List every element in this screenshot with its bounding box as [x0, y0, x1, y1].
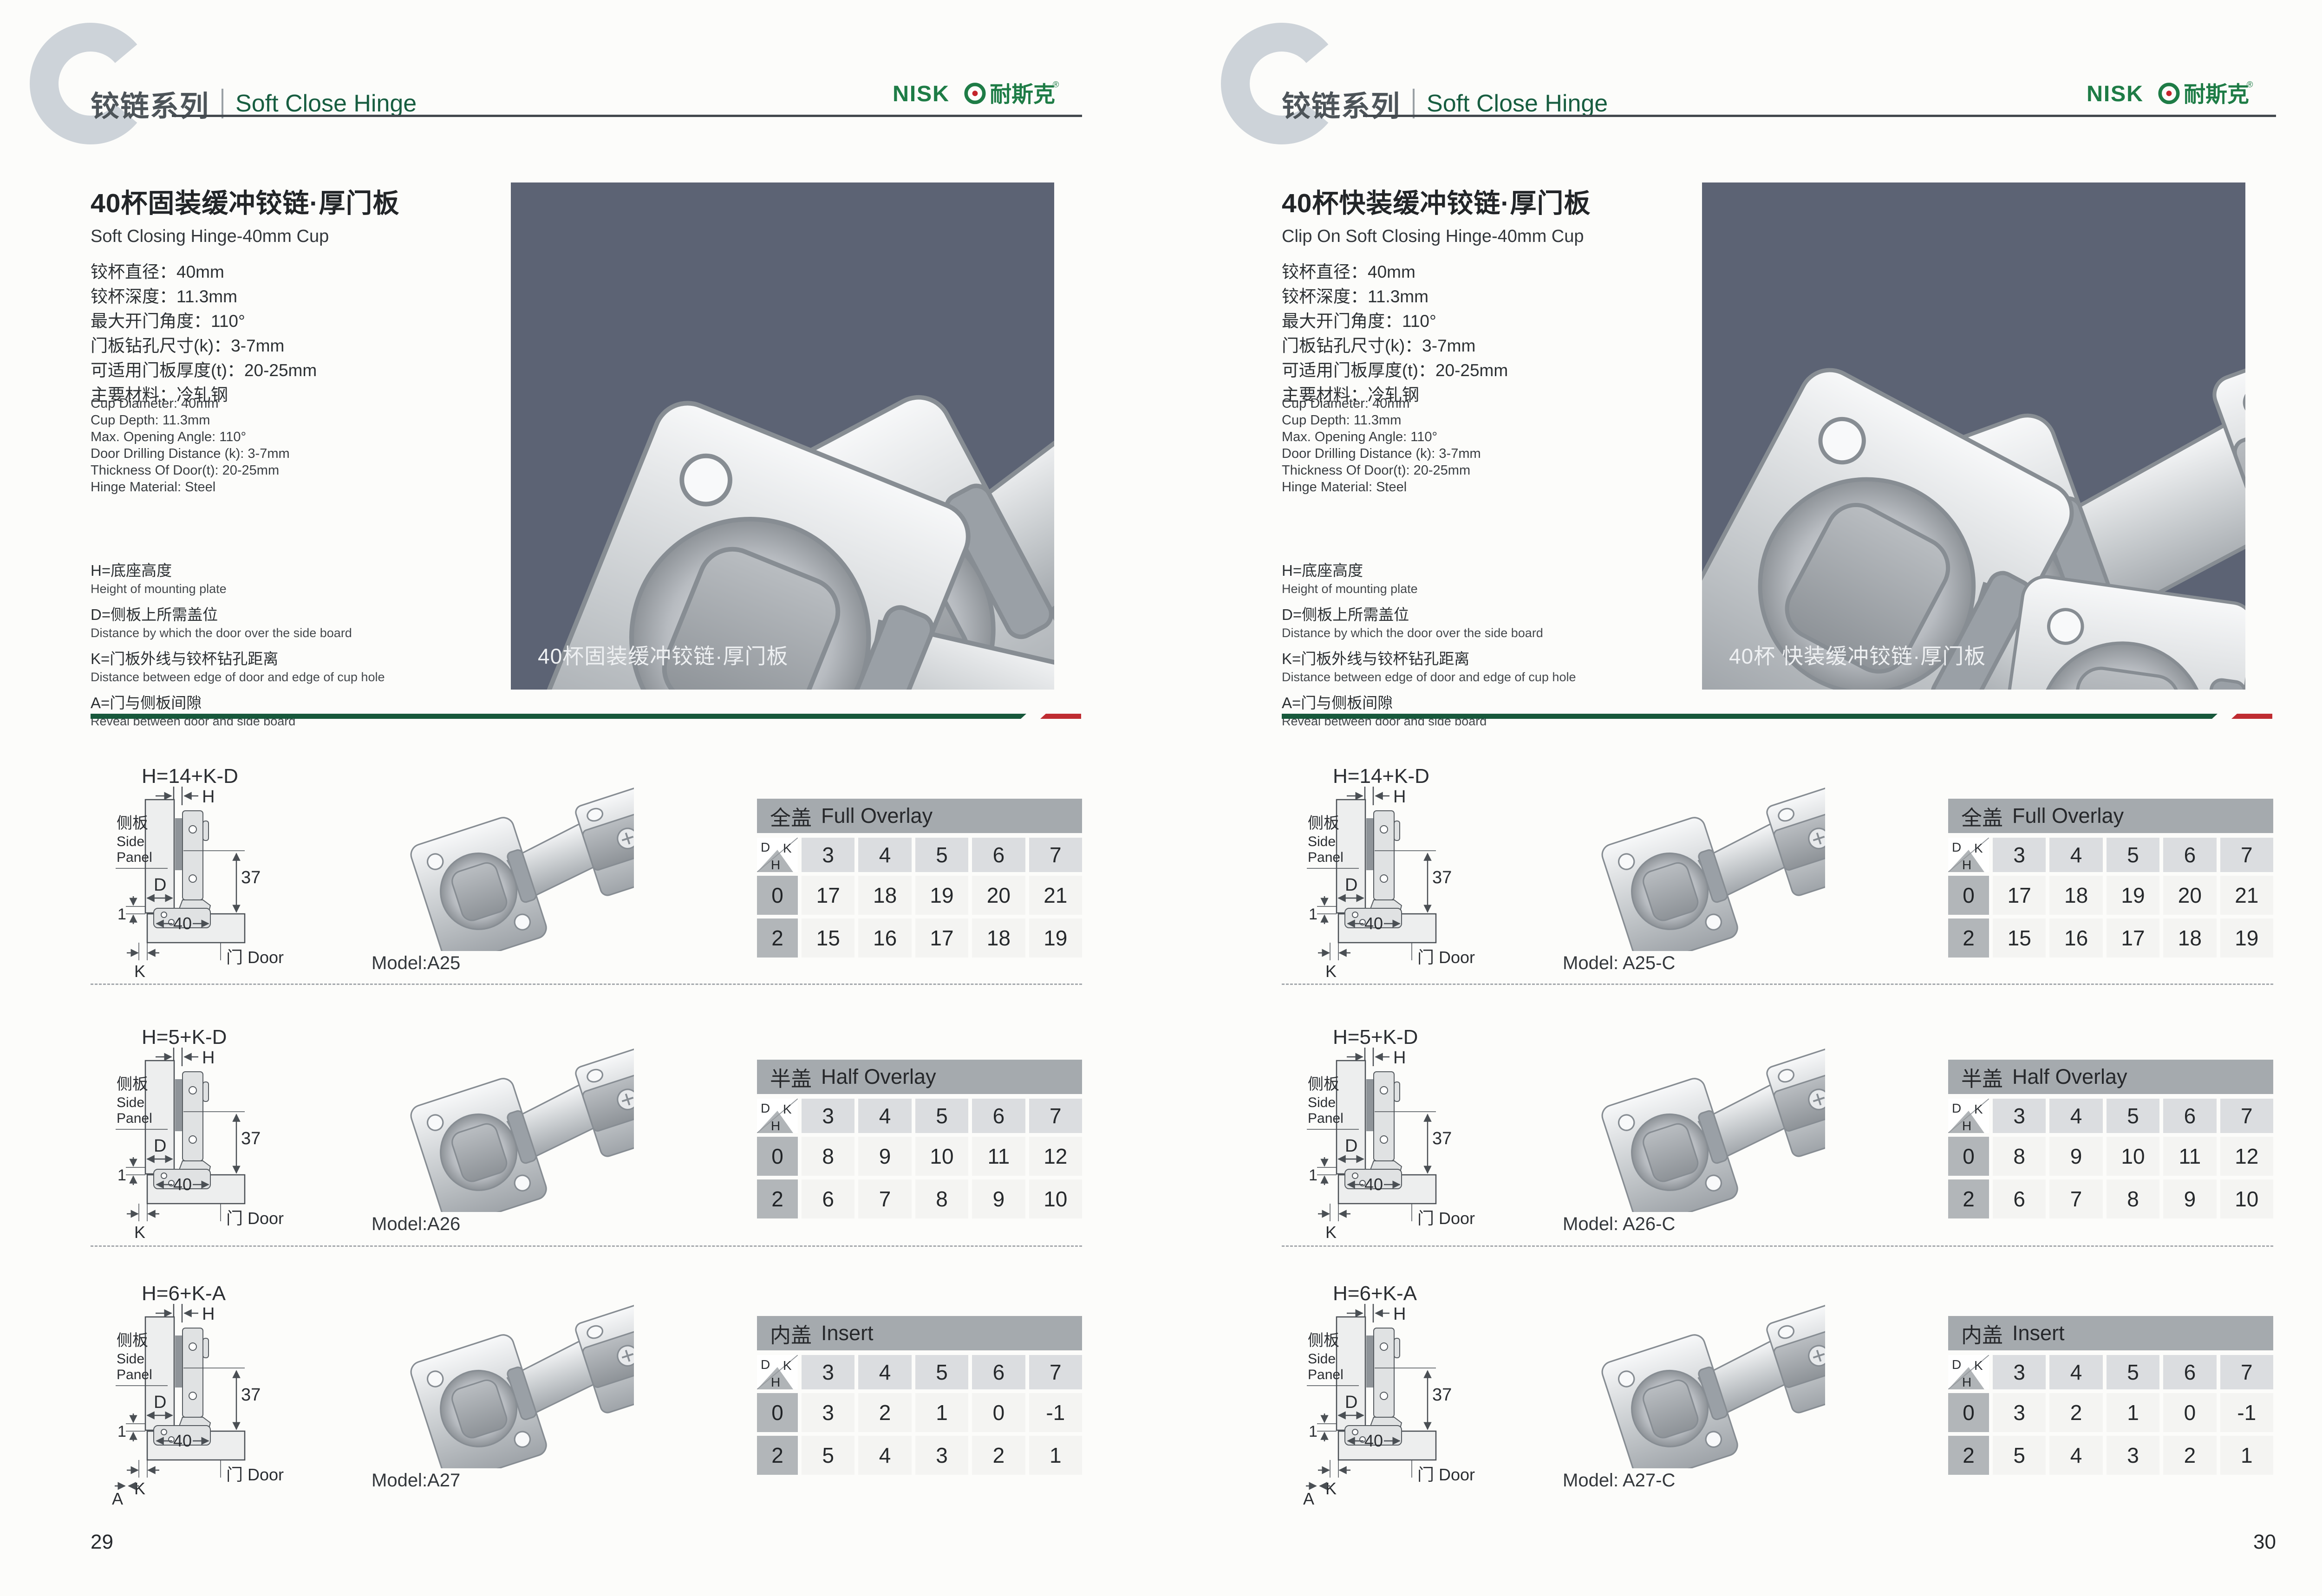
table-cell: 8	[2107, 1179, 2159, 1218]
table-cell: 1	[1029, 1436, 1082, 1475]
table-cell: 5	[1993, 1436, 2046, 1475]
technical-diagram: H=14+K-D H 侧板 Side Panel	[1290, 759, 1550, 991]
door-label: 门 Door	[226, 1209, 284, 1228]
side-panel-label-cn: 侧板	[1308, 814, 1339, 832]
table-cell: 17	[915, 919, 968, 958]
table-cell: 16	[858, 919, 911, 958]
table-cell: 6	[1993, 1179, 2046, 1218]
corner-d: D	[1952, 1357, 1961, 1372]
door-label: 门 Door	[226, 1465, 284, 1484]
table-row-label: 0	[1948, 1393, 1989, 1432]
table-col-header: 3	[802, 838, 854, 872]
table-row-label: 0	[1948, 1137, 1989, 1176]
dim-40-label: 40	[173, 1431, 192, 1450]
table-title-en: Half Overlay	[2012, 1065, 2127, 1089]
table-cell: 18	[858, 876, 911, 915]
hinge-product-photo	[378, 1280, 634, 1468]
diagram-formula: H=6+K-A	[142, 1282, 226, 1305]
dim-h-label: H	[1393, 1048, 1406, 1068]
table-cell: 0	[972, 1393, 1025, 1432]
table-cell: 20	[2163, 876, 2216, 915]
table-cell: 3	[915, 1436, 968, 1475]
table-cell: 1	[915, 1393, 968, 1432]
table-col-header: 4	[858, 1355, 911, 1389]
technical-diagram: H=6+K-A H 侧板 Side Panel	[1290, 1276, 1550, 1508]
side-panel-label-cn: 侧板	[117, 814, 148, 832]
table-title: 内盖 Insert	[1948, 1316, 2273, 1350]
dim-h-label: H	[1393, 787, 1406, 807]
corner-dhk-diagram: D K H	[1948, 1355, 1989, 1389]
corner-d: D	[1952, 1101, 1961, 1115]
table-grid: D K H 345670891011122678910	[757, 1099, 1082, 1218]
overlay-table: 全盖 Full Overlay D K H 345670171819202121…	[1948, 799, 2273, 958]
table-col-header: 4	[2049, 1099, 2102, 1133]
overlay-table: 内盖 Insert D K H 3456703210-1254321	[1948, 1316, 2273, 1475]
diagram-formula: H=14+K-D	[1333, 765, 1429, 788]
table-cell: 4	[858, 1436, 911, 1475]
dim-37-label: 37	[1432, 1129, 1452, 1148]
product-rows: H=14+K-D H 侧板 Side Panel	[1282, 0, 2273, 1596]
table-cell: 6	[802, 1179, 854, 1218]
table-corner-cell: D K H	[757, 1099, 798, 1133]
table-title: 全盖 Full Overlay	[1948, 799, 2273, 833]
table-col-header: 4	[858, 838, 911, 872]
table-title: 半盖 Half Overlay	[1948, 1060, 2273, 1094]
table-row-label: 2	[757, 1179, 798, 1218]
table-cell: 21	[2220, 876, 2273, 915]
table-row-label: 2	[757, 1436, 798, 1475]
dim-d-label: D	[1345, 875, 1357, 895]
dim-1-label: 1	[1309, 905, 1318, 923]
side-panel-label-en2: Panel	[1308, 1367, 1344, 1382]
door-label: 门 Door	[1417, 1465, 1475, 1484]
table-cell: 15	[1993, 919, 2046, 958]
table-cell: 18	[972, 919, 1025, 958]
dim-37-label: 37	[241, 1385, 261, 1405]
overlay-table: 半盖 Half Overlay D K H 345670891011122678…	[757, 1060, 1082, 1218]
side-panel-label-cn: 侧板	[1308, 1332, 1339, 1349]
corner-k: K	[783, 1358, 792, 1373]
table-grid: D K H 345670171819202121516171819	[1948, 838, 2273, 958]
technical-diagram: H=14+K-D H 侧板 Side Panel	[99, 759, 359, 991]
table-corner-cell: D K H	[1948, 838, 1989, 872]
table-col-header: 5	[2107, 1099, 2159, 1133]
table-corner-cell: D K H	[757, 838, 798, 872]
table-cell: 10	[2220, 1179, 2273, 1218]
side-panel-label-en1: Side	[1308, 1095, 1336, 1110]
table-col-header: 7	[1029, 838, 1082, 872]
table-row-label: 2	[757, 919, 798, 958]
dim-k-label: K	[1325, 962, 1337, 981]
table-cell: 19	[1029, 919, 1082, 958]
model-label: Model:A27	[372, 1470, 460, 1491]
corner-k: K	[783, 1102, 792, 1116]
hinge-product-photo	[1569, 762, 1825, 951]
side-panel-label-en1: Side	[1308, 1351, 1336, 1367]
corner-h: H	[771, 858, 780, 872]
corner-dhk-diagram: D K H	[1948, 838, 1989, 872]
model-label: Model: A26-C	[1563, 1214, 1675, 1235]
table-title-cn: 全盖	[1961, 801, 2003, 831]
table-cell: 3	[2107, 1436, 2159, 1475]
table-col-header: 6	[972, 1355, 1025, 1389]
corner-k: K	[1974, 1358, 1983, 1373]
corner-h: H	[1962, 858, 1971, 872]
diagram-formula: H=14+K-D	[142, 765, 238, 788]
table-row-label: 0	[757, 1137, 798, 1176]
corner-dhk-diagram: D K H	[757, 838, 798, 872]
dim-d-label: D	[154, 875, 166, 895]
table-col-header: 7	[1029, 1355, 1082, 1389]
dim-d-label: D	[154, 1136, 166, 1156]
product-row: H=5+K-D H 侧板 Side Panel	[91, 1017, 1082, 1255]
table-grid: D K H 3456703210-1254321	[757, 1355, 1082, 1475]
table-cell: 5	[802, 1436, 854, 1475]
table-cell: 9	[972, 1179, 1025, 1218]
table-col-header: 7	[2220, 838, 2273, 872]
table-col-header: 4	[2049, 1355, 2102, 1389]
corner-d: D	[761, 840, 770, 854]
dim-37-label: 37	[241, 1129, 261, 1148]
table-title-cn: 全盖	[770, 801, 812, 831]
corner-h: H	[1962, 1375, 1971, 1389]
dim-h-label: H	[202, 787, 215, 807]
diagram-formula: H=6+K-A	[1333, 1282, 1417, 1305]
table-cell: 9	[2049, 1137, 2102, 1176]
overlay-table: 半盖 Half Overlay D K H 345670891011122678…	[1948, 1060, 2273, 1218]
hinge-product-photo	[378, 762, 634, 951]
table-title: 半盖 Half Overlay	[757, 1060, 1082, 1094]
table-cell: 17	[2107, 919, 2159, 958]
table-grid: D K H 345670891011122678910	[1948, 1099, 2273, 1218]
product-row: H=14+K-D H 侧板 Side Panel	[1282, 756, 2273, 994]
corner-h: H	[1962, 1119, 1971, 1133]
dim-37-label: 37	[1432, 868, 1452, 887]
table-col-header: 3	[1993, 1099, 2046, 1133]
dim-a-label: A	[112, 1489, 123, 1508]
table-cell: 0	[2163, 1393, 2216, 1432]
table-cell: 10	[915, 1137, 968, 1176]
table-cell: 17	[1993, 876, 2046, 915]
corner-dhk-diagram: D K H	[757, 1099, 798, 1133]
dim-40-label: 40	[1364, 1175, 1383, 1194]
table-grid: D K H 3456703210-1254321	[1948, 1355, 2273, 1475]
table-cell: 12	[2220, 1137, 2273, 1176]
door-label: 门 Door	[1417, 1209, 1475, 1228]
dim-h-label: H	[202, 1048, 215, 1068]
table-cell: 2	[2163, 1436, 2216, 1475]
table-cell: 4	[2049, 1436, 2102, 1475]
table-col-header: 7	[1029, 1099, 1082, 1133]
corner-k: K	[1974, 841, 1983, 855]
model-label: Model:A25	[372, 953, 460, 974]
table-cell: 19	[2107, 876, 2159, 915]
product-row: H=6+K-A H 侧板 Side Panel	[1282, 1273, 2273, 1511]
page-right: 铰链系列 Soft Close Hinge NISK 耐斯克 ® 40杯快装缓冲…	[1168, 0, 2322, 1596]
table-cell: 3	[1993, 1393, 2046, 1432]
page-number: 30	[2253, 1531, 2276, 1554]
dim-h-label: H	[202, 1304, 215, 1324]
table-cell: 21	[1029, 876, 1082, 915]
product-row: H=6+K-A H 侧板 Side Panel	[91, 1273, 1082, 1511]
corner-d: D	[1952, 840, 1961, 854]
diagram-formula: H=5+K-D	[1333, 1026, 1418, 1049]
table-col-header: 6	[2163, 838, 2216, 872]
table-col-header: 6	[2163, 1099, 2216, 1133]
side-panel-label-en1: Side	[117, 1351, 144, 1367]
table-cell: 9	[858, 1137, 911, 1176]
hinge-product-photo	[378, 1023, 634, 1212]
table-col-header: 3	[1993, 1355, 2046, 1389]
dim-40-label: 40	[1364, 1431, 1383, 1450]
dim-1-label: 1	[1309, 1166, 1318, 1184]
table-cell: 7	[2049, 1179, 2102, 1218]
diagram-formula: H=5+K-D	[142, 1026, 227, 1049]
dim-h-label: H	[1393, 1304, 1406, 1324]
hinge-product-photo	[1569, 1023, 1825, 1212]
table-col-header: 4	[2049, 838, 2102, 872]
table-title: 内盖 Insert	[757, 1316, 1082, 1350]
side-panel-label-en1: Side	[117, 1095, 144, 1110]
corner-d: D	[761, 1357, 770, 1372]
table-cell: 17	[802, 876, 854, 915]
side-panel-label-en2: Panel	[1308, 1111, 1344, 1126]
table-col-header: 4	[858, 1099, 911, 1133]
page-left: 铰链系列 Soft Close Hinge NISK 耐斯克 ® 40杯固装缓冲…	[0, 0, 1168, 1596]
table-cell: 11	[2163, 1137, 2216, 1176]
table-cell: 2	[972, 1436, 1025, 1475]
side-panel-label-en2: Panel	[117, 850, 152, 865]
corner-k: K	[1974, 1102, 1983, 1116]
table-col-header: 7	[2220, 1355, 2273, 1389]
dim-k-label: K	[1325, 1479, 1337, 1498]
corner-k: K	[783, 841, 792, 855]
table-col-header: 7	[2220, 1099, 2273, 1133]
dim-1-label: 1	[117, 905, 126, 923]
table-cell: 8	[1993, 1137, 2046, 1176]
table-cell: -1	[1029, 1393, 1082, 1432]
dim-37-label: 37	[241, 868, 261, 887]
table-row-label: 2	[1948, 919, 1989, 958]
table-col-header: 5	[915, 838, 968, 872]
table-cell: 10	[1029, 1179, 1082, 1218]
table-title-en: Half Overlay	[821, 1065, 936, 1089]
model-label: Model: A25-C	[1563, 953, 1675, 974]
table-cell: 2	[858, 1393, 911, 1432]
table-cell: 19	[915, 876, 968, 915]
table-col-header: 3	[802, 1355, 854, 1389]
table-col-header: 5	[915, 1099, 968, 1133]
table-corner-cell: D K H	[1948, 1355, 1989, 1389]
table-cell: 3	[802, 1393, 854, 1432]
side-panel-label-cn: 侧板	[117, 1332, 148, 1349]
dim-k-label: K	[134, 1479, 145, 1498]
table-row-label: 2	[1948, 1179, 1989, 1218]
technical-diagram: H=6+K-A H 侧板 Side Panel	[99, 1276, 359, 1508]
table-col-header: 3	[802, 1099, 854, 1133]
dim-40-label: 40	[173, 914, 192, 933]
dashed-separator	[1282, 1245, 2273, 1247]
side-panel-label-en2: Panel	[117, 1367, 152, 1382]
corner-dhk-diagram: D K H	[1948, 1099, 1989, 1133]
corner-d: D	[761, 1101, 770, 1115]
side-panel-label-en1: Side	[1308, 834, 1336, 849]
side-panel-label-cn: 侧板	[117, 1075, 148, 1093]
table-title-cn: 半盖	[770, 1062, 812, 1092]
table-title-en: Insert	[821, 1321, 874, 1345]
table-col-header: 6	[972, 838, 1025, 872]
technical-diagram: H=5+K-D H 侧板 Side Panel	[1290, 1020, 1550, 1252]
dim-1-label: 1	[1309, 1423, 1318, 1440]
table-cell: 18	[2049, 876, 2102, 915]
table-cell: 16	[2049, 919, 2102, 958]
side-panel-label-en2: Panel	[1308, 850, 1344, 865]
technical-diagram: H=5+K-D H 侧板 Side Panel	[99, 1020, 359, 1252]
table-grid: D K H 345670171819202121516171819	[757, 838, 1082, 958]
table-cell: 11	[972, 1137, 1025, 1176]
table-row-label: 0	[1948, 876, 1989, 915]
table-cell: 19	[2220, 919, 2273, 958]
dashed-separator	[91, 984, 1082, 985]
dim-1-label: 1	[117, 1423, 126, 1440]
dashed-separator	[91, 1245, 1082, 1247]
table-col-header: 6	[2163, 1355, 2216, 1389]
page-number: 29	[91, 1531, 113, 1554]
dim-d-label: D	[1345, 1136, 1357, 1156]
table-cell: -1	[2220, 1393, 2273, 1432]
dim-1-label: 1	[117, 1166, 126, 1184]
table-title-cn: 内盖	[1961, 1318, 2003, 1348]
table-cell: 8	[802, 1137, 854, 1176]
table-cell: 8	[915, 1179, 968, 1218]
side-panel-label-cn: 侧板	[1308, 1075, 1339, 1093]
table-cell: 10	[2107, 1137, 2159, 1176]
table-cell: 12	[1029, 1137, 1082, 1176]
product-row: H=5+K-D H 侧板 Side Panel	[1282, 1017, 2273, 1255]
catalog-spread: 铰链系列 Soft Close Hinge NISK 耐斯克 ® 40杯固装缓冲…	[0, 0, 2322, 1596]
corner-h: H	[771, 1375, 780, 1389]
table-title-en: Full Overlay	[2012, 804, 2124, 828]
dim-d-label: D	[1345, 1393, 1357, 1412]
side-panel-label-en2: Panel	[117, 1111, 152, 1126]
product-rows: H=14+K-D H 侧板 Side Panel	[91, 0, 1082, 1596]
table-cell: 7	[858, 1179, 911, 1218]
door-label: 门 Door	[1417, 948, 1475, 967]
model-label: Model: A27-C	[1563, 1470, 1675, 1491]
dim-37-label: 37	[1432, 1385, 1452, 1405]
table-col-header: 6	[972, 1099, 1025, 1133]
dim-k-label: K	[1325, 1223, 1337, 1242]
table-cell: 20	[972, 876, 1025, 915]
table-title: 全盖 Full Overlay	[757, 799, 1082, 833]
product-row: H=14+K-D H 侧板 Side Panel	[91, 756, 1082, 994]
dim-d-label: D	[154, 1393, 166, 1412]
dim-40-label: 40	[173, 1175, 192, 1194]
dim-40-label: 40	[1364, 914, 1383, 933]
hinge-product-photo	[1569, 1280, 1825, 1468]
table-cell: 15	[802, 919, 854, 958]
corner-h: H	[771, 1119, 780, 1133]
table-row-label: 2	[1948, 1436, 1989, 1475]
model-label: Model:A26	[372, 1214, 460, 1235]
door-label: 门 Door	[226, 948, 284, 967]
table-cell: 9	[2163, 1179, 2216, 1218]
dim-a-label: A	[1303, 1489, 1314, 1508]
table-col-header: 3	[1993, 838, 2046, 872]
table-title-cn: 内盖	[770, 1318, 812, 1348]
table-title-en: Insert	[2012, 1321, 2065, 1345]
table-col-header: 5	[2107, 838, 2159, 872]
table-corner-cell: D K H	[757, 1355, 798, 1389]
corner-dhk-diagram: D K H	[757, 1355, 798, 1389]
table-col-header: 5	[2107, 1355, 2159, 1389]
table-title-cn: 半盖	[1961, 1062, 2003, 1092]
side-panel-label-en1: Side	[117, 834, 144, 849]
table-cell: 18	[2163, 919, 2216, 958]
overlay-table: 全盖 Full Overlay D K H 345670171819202121…	[757, 799, 1082, 958]
table-row-label: 0	[757, 1393, 798, 1432]
table-corner-cell: D K H	[1948, 1099, 1989, 1133]
table-cell: 1	[2107, 1393, 2159, 1432]
overlay-table: 内盖 Insert D K H 3456703210-1254321	[757, 1316, 1082, 1475]
dim-k-label: K	[134, 962, 145, 981]
dim-k-label: K	[134, 1223, 145, 1242]
table-cell: 2	[2049, 1393, 2102, 1432]
table-row-label: 0	[757, 876, 798, 915]
table-title-en: Full Overlay	[821, 804, 933, 828]
dashed-separator	[1282, 984, 2273, 985]
table-cell: 1	[2220, 1436, 2273, 1475]
table-col-header: 5	[915, 1355, 968, 1389]
